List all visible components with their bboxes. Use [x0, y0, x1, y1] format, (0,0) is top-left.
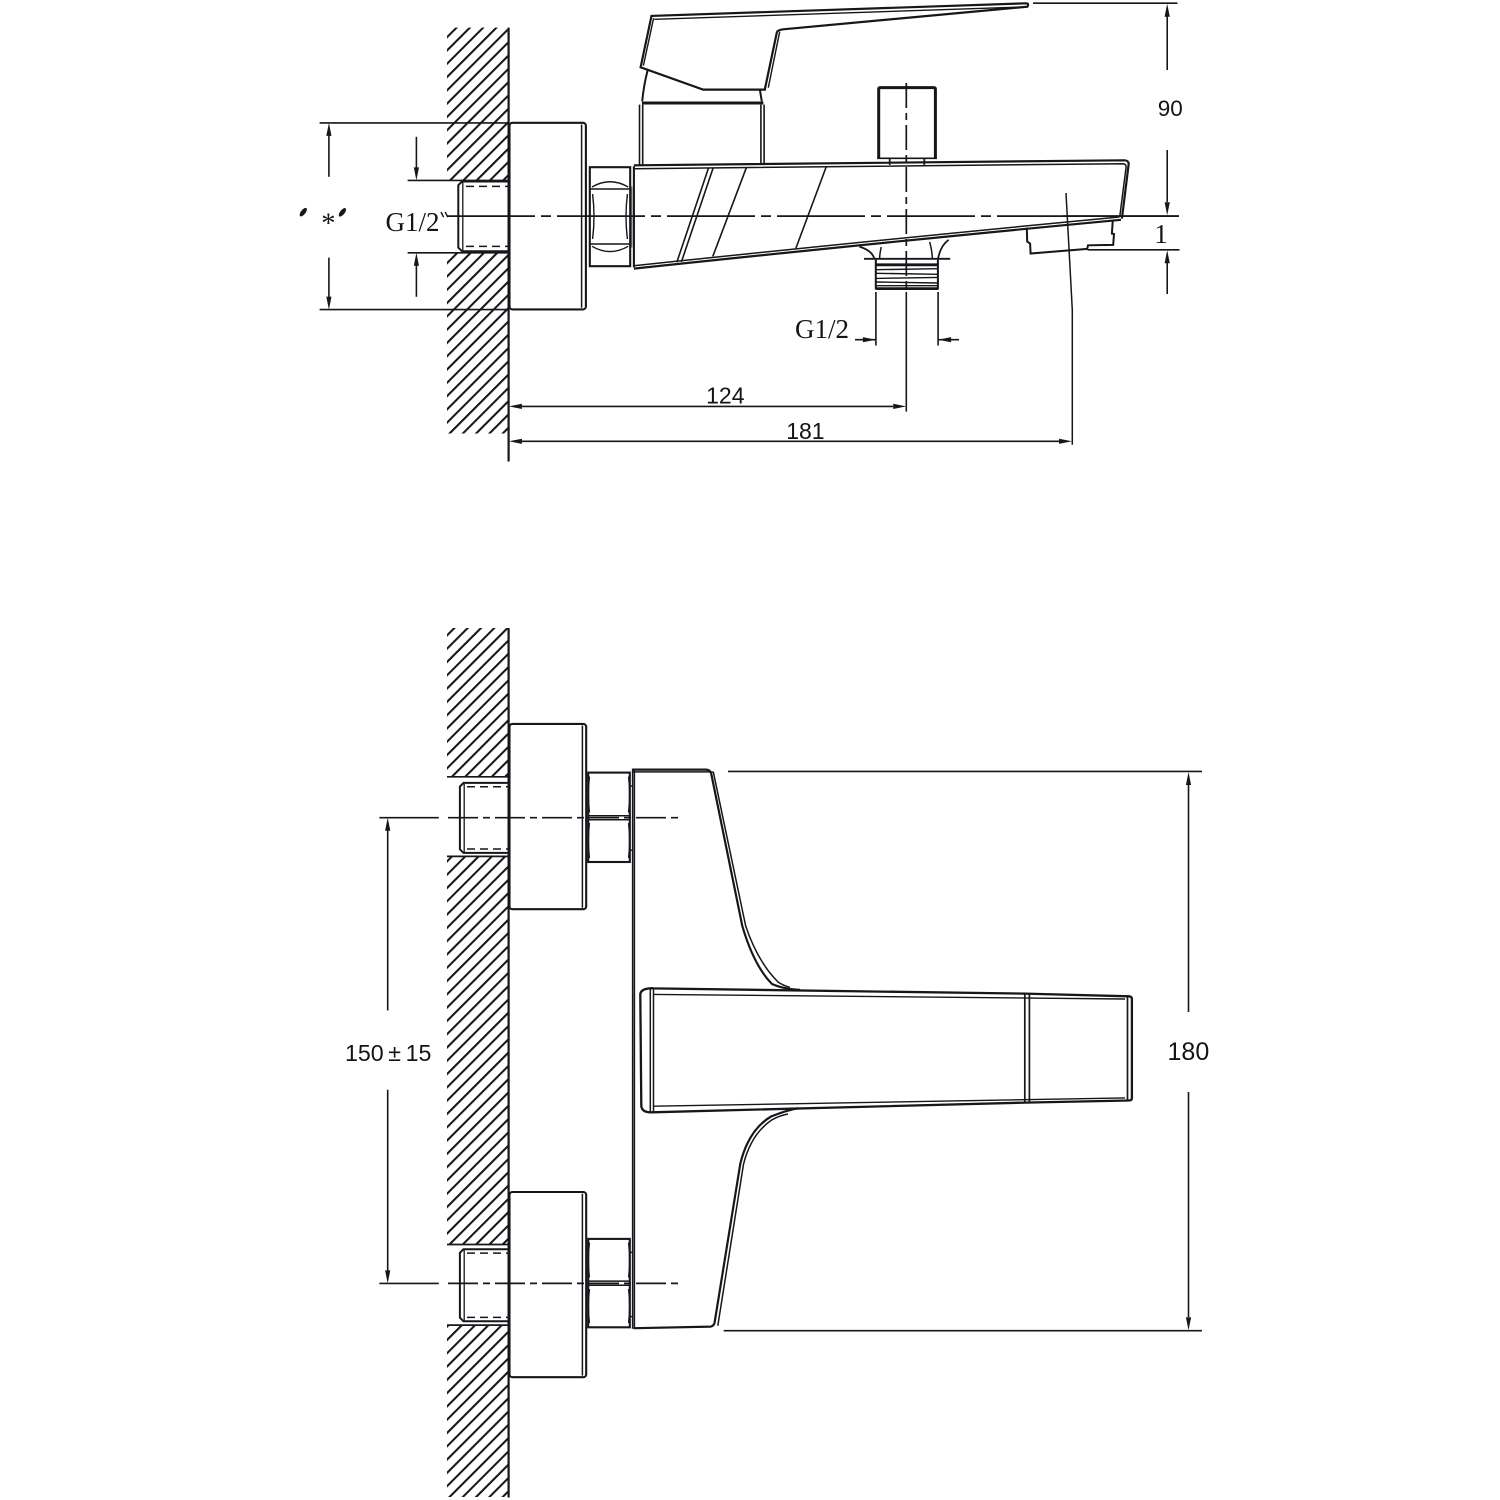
svg-text:90: 90 [1158, 96, 1183, 121]
svg-text:*: * [321, 209, 335, 240]
svg-text:124: 124 [706, 382, 745, 408]
svg-text:1: 1 [1154, 219, 1168, 249]
svg-text:150 ± 15: 150 ± 15 [345, 1040, 432, 1066]
svg-text:180: 180 [1168, 1038, 1210, 1066]
svg-text:181: 181 [786, 418, 824, 444]
svg-text:G1/2: G1/2 [795, 314, 849, 344]
svg-text:G1/2: G1/2 [386, 207, 440, 237]
